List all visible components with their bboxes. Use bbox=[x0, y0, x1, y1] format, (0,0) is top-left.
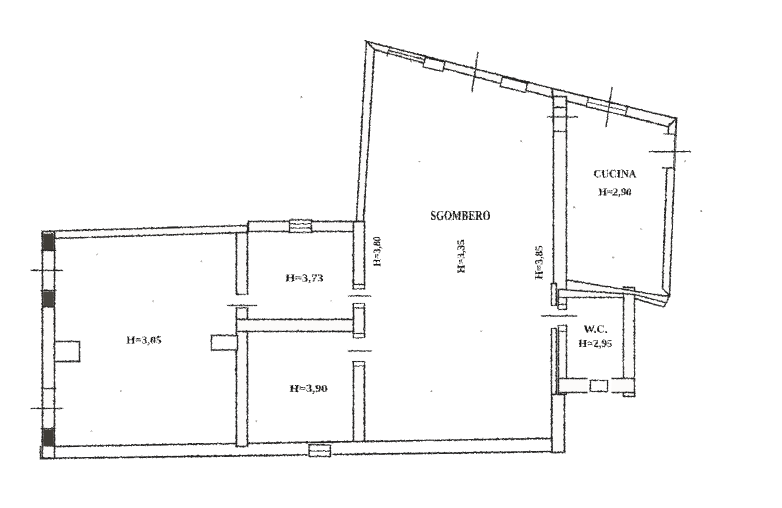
svg-text:H=3,35: H=3,35 bbox=[455, 239, 467, 273]
svg-text:H=3,90: H=3,90 bbox=[289, 383, 328, 395]
svg-text:H=2,90: H=2,90 bbox=[598, 186, 631, 198]
svg-text:W.C.: W.C. bbox=[583, 322, 607, 336]
svg-text:SGOMBERO: SGOMBERO bbox=[430, 209, 490, 224]
svg-text:H=3,80: H=3,80 bbox=[371, 236, 383, 266]
svg-text:H=3,85: H=3,85 bbox=[533, 245, 545, 279]
svg-text:H=3,05: H=3,05 bbox=[126, 334, 162, 346]
svg-text:H=3,73: H=3,73 bbox=[285, 272, 324, 284]
svg-text:CUCINA: CUCINA bbox=[593, 166, 636, 180]
svg-text:H=2,95: H=2,95 bbox=[578, 338, 612, 350]
